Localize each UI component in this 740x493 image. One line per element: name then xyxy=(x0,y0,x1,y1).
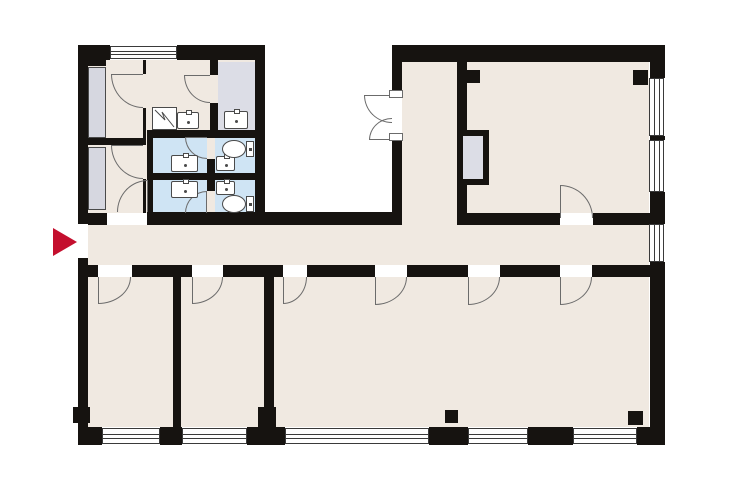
door-panel xyxy=(389,90,403,98)
wall xyxy=(78,45,88,224)
room-corridor xyxy=(88,225,649,265)
window xyxy=(182,428,247,444)
mop-sink xyxy=(152,107,177,130)
wall xyxy=(177,45,265,60)
sink-tap xyxy=(234,109,240,114)
wall xyxy=(637,427,665,445)
sink xyxy=(171,155,198,172)
window-pane-line xyxy=(659,141,660,191)
cabinet xyxy=(88,147,106,210)
door-panel xyxy=(389,133,403,141)
wall xyxy=(264,277,274,427)
column xyxy=(633,70,648,85)
window xyxy=(573,428,637,444)
column xyxy=(628,411,643,425)
toilet-flush-button xyxy=(249,148,252,151)
wall xyxy=(500,265,560,277)
window xyxy=(102,428,160,444)
sink xyxy=(224,111,248,129)
door-leaf xyxy=(375,277,376,305)
window-pane-line xyxy=(574,434,636,435)
wall xyxy=(223,265,283,277)
sink-drain xyxy=(184,164,187,167)
wall xyxy=(592,265,665,277)
room-meeting-room xyxy=(467,62,649,213)
column xyxy=(445,410,458,423)
door-leaf xyxy=(560,277,561,305)
sink-drain xyxy=(225,164,228,167)
window xyxy=(649,140,664,192)
wall xyxy=(132,265,192,277)
window-pane-line xyxy=(469,434,527,435)
window-pane-line xyxy=(111,51,176,52)
wall xyxy=(247,427,285,445)
wall xyxy=(392,140,402,225)
wall xyxy=(143,60,146,74)
wall xyxy=(457,213,560,225)
wall xyxy=(210,60,218,75)
wall xyxy=(593,213,650,225)
wall xyxy=(210,103,218,130)
sink xyxy=(216,156,235,171)
door-leaf xyxy=(147,180,148,212)
door-leaf xyxy=(111,74,143,75)
wall xyxy=(407,265,468,277)
wall xyxy=(650,192,665,224)
sink xyxy=(171,181,198,198)
shaft xyxy=(463,136,483,179)
sink-tap xyxy=(186,110,192,115)
wall xyxy=(160,427,182,445)
window-pane-line xyxy=(286,438,428,439)
sink-tap xyxy=(183,153,189,158)
door-leaf xyxy=(111,145,143,146)
door-leaf xyxy=(98,277,99,304)
wall xyxy=(143,108,146,145)
floor-plan-canvas xyxy=(0,0,740,493)
window xyxy=(285,428,429,444)
column xyxy=(73,407,90,423)
door-leaf xyxy=(560,185,561,218)
toilet-bowl xyxy=(222,195,246,213)
wall xyxy=(392,45,665,62)
wall xyxy=(429,427,468,445)
sink-drain xyxy=(184,190,187,193)
mop-sink-zigzag-icon xyxy=(153,108,176,129)
window-pane-line xyxy=(183,438,246,439)
door-leaf xyxy=(468,277,469,305)
window-pane-line xyxy=(574,438,636,439)
sink-drain xyxy=(235,120,238,123)
toilet-tank xyxy=(246,196,254,212)
wall xyxy=(78,138,143,145)
wall xyxy=(528,427,573,445)
door-leaf xyxy=(206,191,207,213)
door-leaf xyxy=(283,277,284,304)
window xyxy=(649,224,664,262)
room-north-lobby xyxy=(402,62,457,225)
window-pane-line xyxy=(469,438,527,439)
wall xyxy=(150,212,392,225)
window-pane-line xyxy=(654,225,655,261)
wall xyxy=(307,265,375,277)
window xyxy=(110,46,177,59)
window-pane-line xyxy=(654,141,655,191)
wall xyxy=(650,45,665,78)
wall xyxy=(207,130,215,137)
wall xyxy=(173,277,181,427)
toilet-bowl xyxy=(222,140,246,158)
door-leaf xyxy=(184,75,210,76)
sink xyxy=(216,181,235,195)
window-pane-line xyxy=(183,434,246,435)
sink-drain xyxy=(187,121,190,124)
door-leaf xyxy=(185,137,207,138)
wall xyxy=(207,213,215,225)
entrance-arrow xyxy=(53,228,77,256)
sink-tap xyxy=(224,179,230,184)
wall xyxy=(650,262,665,445)
toilet-flush-button xyxy=(249,203,252,206)
toilet-tank xyxy=(246,141,254,157)
window-pane-line xyxy=(103,438,159,439)
sink-drain xyxy=(225,188,228,191)
cabinet xyxy=(88,67,106,138)
door-leaf xyxy=(364,95,392,96)
column xyxy=(258,407,276,427)
window-pane-line xyxy=(111,54,176,55)
window-pane-line xyxy=(103,434,159,435)
room-open-office xyxy=(274,277,649,427)
wall xyxy=(147,173,265,180)
window-pane-line xyxy=(654,79,655,135)
window xyxy=(468,428,528,444)
window-pane-line xyxy=(286,434,428,435)
sink-tap xyxy=(183,179,189,184)
door-leaf xyxy=(192,277,193,304)
window-pane-line xyxy=(659,225,660,261)
sink xyxy=(177,112,199,129)
wall xyxy=(78,265,98,277)
entrance-opening xyxy=(78,224,88,258)
wall xyxy=(78,427,102,445)
column xyxy=(466,70,480,83)
window-pane-line xyxy=(659,79,660,135)
window xyxy=(649,78,664,136)
wall xyxy=(78,45,110,60)
